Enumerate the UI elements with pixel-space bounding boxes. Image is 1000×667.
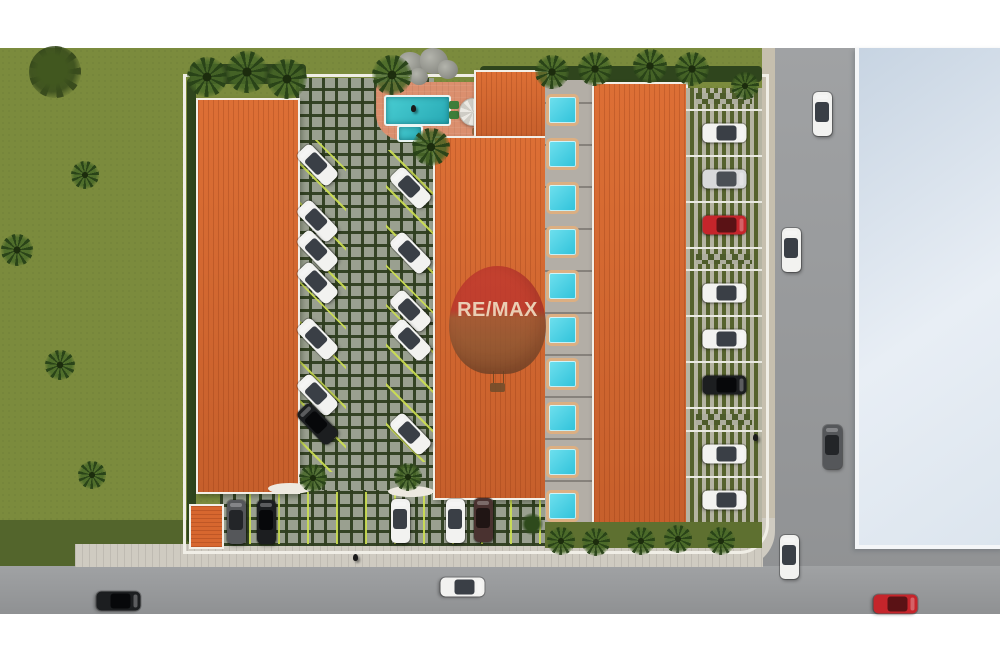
- palm-tree: [372, 55, 412, 95]
- plunge-pool: [546, 358, 579, 390]
- car-hood: [739, 173, 743, 185]
- plunge-pool: [546, 490, 579, 522]
- car-window: [716, 218, 736, 232]
- car-window: [716, 447, 736, 461]
- parking-bay: [686, 155, 762, 201]
- plunge-pool: [546, 314, 579, 346]
- car-window: [393, 509, 407, 529]
- parking-bay: [686, 201, 762, 247]
- car-graydark: [227, 500, 246, 544]
- plunge-pool: [546, 446, 579, 478]
- car-window: [259, 510, 273, 530]
- paver-grid: [696, 254, 752, 265]
- car-white: [391, 499, 410, 543]
- car-brown: [474, 498, 493, 542]
- lounger: [449, 101, 459, 109]
- car-hood: [739, 448, 743, 460]
- car-graydark: [823, 425, 842, 469]
- building-right-roof: [592, 82, 688, 534]
- car-white: [702, 330, 746, 349]
- plunge-pool: [546, 402, 579, 434]
- car-hood: [449, 502, 461, 506]
- car-hood: [816, 95, 828, 99]
- palm-tree: [633, 49, 667, 83]
- palm-tree: [267, 59, 307, 99]
- car-hood: [739, 219, 743, 231]
- parking-bay: [686, 361, 762, 407]
- palm-tree: [226, 51, 268, 93]
- palm-tree: [627, 527, 655, 555]
- car-white: [446, 499, 465, 543]
- plunge-pool: [546, 94, 579, 126]
- palm-tree: [535, 55, 569, 89]
- car-hood: [739, 127, 743, 139]
- parking-bay: [686, 315, 762, 361]
- car-black: [257, 500, 276, 544]
- car-window: [782, 545, 796, 565]
- palm-tree: [1, 234, 33, 266]
- rock-feature: [438, 60, 458, 79]
- building-left-roof: [196, 98, 300, 494]
- neighbor-building-roof: [855, 48, 1000, 549]
- aerial-site-plan-render: RE/MAX: [0, 0, 1000, 667]
- car-white: [782, 228, 801, 272]
- palm-tree: [78, 461, 106, 489]
- car-hood: [133, 595, 137, 607]
- car-window: [476, 508, 490, 528]
- palm-tree: [547, 527, 575, 555]
- palm-tree: [71, 161, 99, 189]
- car-window: [784, 238, 798, 258]
- palm-tree: [731, 72, 759, 100]
- car-hood: [739, 379, 743, 391]
- remax-balloon-watermark: RE/MAX: [449, 266, 546, 396]
- palm-tree: [299, 464, 327, 492]
- car-hood: [394, 502, 406, 506]
- car-hood: [477, 581, 481, 593]
- parking-bay: [686, 109, 762, 155]
- car-white: [440, 578, 484, 597]
- palm-tree: [707, 527, 735, 555]
- palm-tree: [412, 128, 450, 166]
- car-hood: [739, 494, 743, 506]
- car-white: [702, 491, 746, 510]
- car-window: [825, 435, 839, 455]
- palm-tree: [45, 350, 75, 380]
- pedestrian: [753, 434, 758, 441]
- palm-tree: [394, 463, 422, 491]
- swimmer: [411, 105, 416, 112]
- car-black: [96, 592, 140, 611]
- parking-bay: [686, 430, 762, 476]
- car-window: [716, 378, 736, 392]
- car-window: [716, 286, 736, 300]
- entrance-kiosk-roof: [189, 504, 224, 549]
- road-bottom: [0, 566, 1000, 614]
- plunge-pool: [546, 138, 579, 170]
- watermark-text: RE/MAX: [449, 299, 546, 322]
- balloon-envelope: RE/MAX: [449, 266, 546, 374]
- car-window: [887, 597, 907, 611]
- car-window: [716, 126, 736, 140]
- car-white: [813, 92, 832, 136]
- car-hood: [260, 503, 272, 507]
- palm-tree: [675, 52, 709, 86]
- car-hood: [230, 503, 242, 507]
- car-white: [702, 445, 746, 464]
- swimming-pool: [384, 95, 451, 126]
- car-window: [716, 172, 736, 186]
- car-hood: [785, 231, 797, 235]
- right-parking-strip: [686, 88, 762, 522]
- rock-feature: [410, 68, 428, 85]
- car-window: [110, 594, 130, 608]
- car-window: [454, 580, 474, 594]
- car-hood: [783, 538, 795, 542]
- car-white: [780, 535, 799, 579]
- car-window: [448, 509, 462, 529]
- palm-tree: [582, 528, 610, 556]
- bush: [521, 513, 543, 535]
- plunge-pool: [546, 182, 579, 214]
- tree: [29, 46, 81, 98]
- car-hood: [739, 287, 743, 299]
- car-window: [716, 493, 736, 507]
- car-window: [815, 102, 829, 122]
- parking-bay: [686, 407, 762, 430]
- car-silver: [702, 169, 746, 188]
- palm-tree: [578, 52, 612, 86]
- car-window: [229, 510, 243, 530]
- car-hood: [739, 333, 743, 345]
- car-hood: [910, 598, 914, 610]
- parking-bay: [686, 247, 762, 270]
- car-black: [702, 376, 746, 395]
- hedge-left: [187, 78, 196, 543]
- car-white: [702, 284, 746, 303]
- palm-tree: [187, 57, 227, 97]
- parking-bay: [686, 269, 762, 315]
- car-white: [702, 123, 746, 142]
- car-hood: [477, 501, 489, 505]
- car-hood: [826, 428, 838, 432]
- pedestrian: [353, 554, 358, 561]
- paver-grid: [696, 414, 752, 425]
- car-red: [873, 595, 917, 614]
- parking-bay: [686, 476, 762, 522]
- palm-tree: [664, 525, 692, 553]
- plunge-pool: [546, 226, 579, 258]
- car-red: [702, 215, 746, 234]
- car-window: [716, 332, 736, 346]
- balloon-basket: [490, 383, 505, 392]
- lounger: [449, 111, 459, 119]
- plunge-pool: [546, 270, 579, 302]
